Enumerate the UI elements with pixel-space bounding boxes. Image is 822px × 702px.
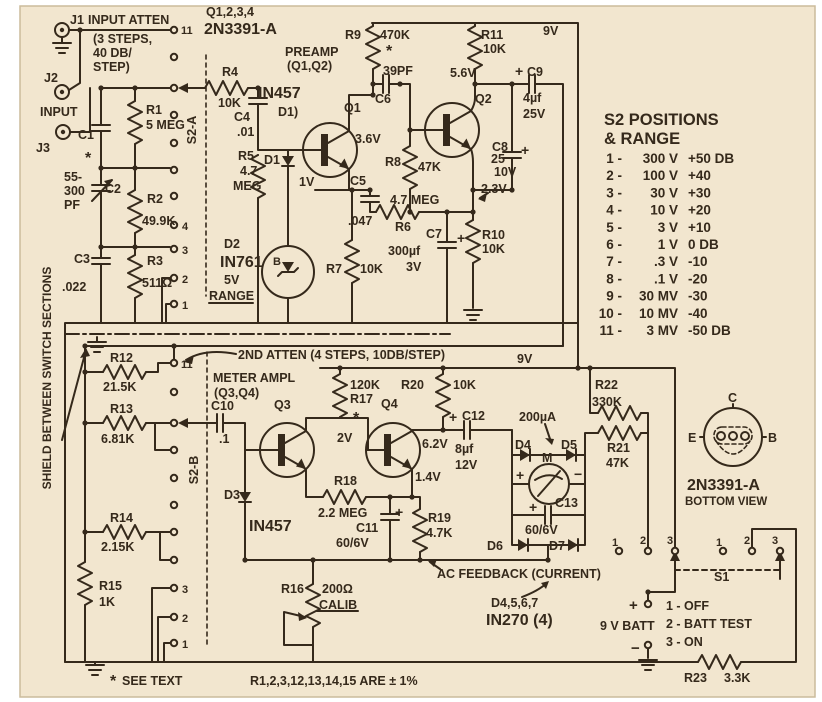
r22-label: R22 [595,378,618,392]
s2-row-11-pos: 11 - [599,323,622,338]
batt-minus: − [631,640,640,657]
s1a-pos-3: 3 [667,535,673,547]
r2-label: R2 [147,192,163,206]
r14-value: 2.15K [101,540,134,554]
r9-value: 470K [380,28,410,42]
r5-value-1: 4.7 [240,164,257,178]
q-note-1: Q1,2,3,4 [206,5,254,19]
c2-value-2: 300 [64,184,85,198]
c9-value-2: 25V [523,107,546,121]
c13-value: 60/6V [525,523,558,537]
s1-position-3: 3 - ON [666,635,703,649]
c1-star: * [85,150,92,167]
c9-value-1: 4µf [523,91,542,105]
c11-label: C11 [356,521,378,535]
s2-row-2-db: +40 [688,168,711,183]
q1-label: Q1 [344,101,361,115]
s2-row-6-db: 0 DB [688,237,719,252]
r3-label: R3 [147,254,163,268]
r15-value: 1K [99,595,115,609]
atten-note-3: STEP) [93,60,130,74]
s2-row-10-db: -40 [688,306,708,321]
r16-calib: CALIB [319,598,357,612]
s2-row-5-pos: 5 - [606,220,622,235]
r4-value: 10K [218,96,241,110]
see-text-star: * [110,673,117,690]
r13-value: 6.81K [101,432,134,446]
schematic-canvas: S2 POSITIONS & RANGE J1INPUT ATTEN(3 STE… [0,0,822,702]
r18-label: R18 [334,474,357,488]
q3-collector-v: 2V [337,431,353,445]
s2-row-2-pos: 2 - [606,168,622,183]
s2-row-3-range: 30 V [650,185,678,200]
c12-value-2: 12V [455,458,478,472]
q4-collector-v: 6.2V [422,437,448,451]
s2-row-2-range: 100 V [643,168,678,183]
bv-e: E [688,431,696,445]
bv-b: B [768,431,777,445]
r15-label: R15 [99,579,122,593]
batt-plus: + [629,597,638,614]
s2a-pos-3: 3 [182,245,188,257]
d7-label: D7 [549,539,565,553]
r7-value: 10K [360,262,383,276]
preamp-1: PREAMP [285,45,338,59]
d1-part: IN457 [258,85,301,102]
preamp-2: (Q1,Q2) [287,59,332,73]
j3-label: J3 [36,141,50,155]
schematic-scan: S2 POSITIONS & RANGE J1INPUT ATTEN(3 STE… [0,0,822,702]
c3-label: C3 [74,252,90,266]
second-atten-note: 2ND ATTEN (4 STEPS, 10DB/STEP) [238,348,445,362]
tolerance-note: R1,2,3,12,13,14,15 ARE ± 1% [250,674,418,688]
s2b-pos-11: 11 [181,359,193,371]
r22-value: 330K [592,395,622,409]
s1-position-1: 1 - OFF [666,599,709,613]
r5-value-2: MEG [233,179,261,193]
c7-plus: + [457,230,465,246]
s2b-pos-3: 3 [182,584,188,596]
r10-label: R10 [482,228,505,242]
c10-label: C10 [211,399,234,413]
r3-value: 511Ω [142,276,172,290]
s1b-pos-3: 3 [772,535,778,547]
d4-label: D4 [515,438,531,452]
r11-value: 10K [483,42,506,56]
s2-row-11-db: -50 DB [688,323,731,338]
d4567-label: D4,5,6,7 [491,596,538,610]
s2-row-3-db: +30 [688,185,711,200]
s2-row-1-pos: 1 - [606,151,622,166]
c2-label: C2 [105,182,121,196]
d4567-part: IN270 (4) [486,612,553,629]
supply-9v-top: 9V [543,24,559,38]
c12-plus: + [449,409,457,425]
d6-label: D6 [487,539,503,553]
supply-9v-low: 9V [517,352,533,366]
q2-base-v: 5.6V [450,66,476,80]
s2-row-8-db: -20 [688,271,708,286]
range-label: RANGE [209,289,254,303]
d2-part: IN761 [220,254,263,271]
c8-plus: + [521,142,529,158]
c3-value: .022 [62,280,86,294]
r23-label: R23 [684,671,707,685]
s1a-pos-2: 2 [640,535,646,547]
d1-pointer: D1) [278,105,298,119]
d2-value: 5V [224,273,240,287]
shield-note: SHIELD BETWEEN SWITCH SECTIONS [40,267,54,490]
q1-collector-v: 3.6V [355,132,381,146]
input-label: INPUT [40,105,78,119]
d2-b: B [273,256,281,268]
meter-value: 200µA [519,410,556,424]
q3-label: Q3 [274,398,291,412]
r17-label: R17 [350,392,373,406]
r6-value: 4.7 MEG [390,193,439,207]
s2-row-1-range: 300 V [643,151,678,166]
r12-label: R12 [110,351,133,365]
r20-value: 10K [453,378,476,392]
s1b-pos-1: 1 [716,537,722,549]
s1-position-2: 2 - BATT TEST [666,617,752,631]
c4-value: .01 [237,125,254,139]
s2-row-9-pos: 9 - [606,289,622,304]
s2-row-5-range: 3 V [658,220,678,235]
atten-note-2: 40 DB/ [93,46,132,60]
s1b-pos-2: 2 [744,535,750,547]
r13-label: R13 [110,402,133,416]
r1-label: R1 [146,103,162,117]
s2-row-9-db: -30 [688,289,708,304]
s2-row-6-range: 1 V [658,237,678,252]
s2a-pos-1: 1 [182,300,188,312]
r19-label: R19 [428,511,451,525]
s2-row-8-range: .1 V [654,271,678,286]
s2-row-8-pos: 8 - [606,271,622,286]
r2-value: 49.9K [142,214,175,228]
batt-label: 9 V BATT [600,619,655,633]
c1-label: C1 [78,128,94,142]
r11-label: R11 [481,28,503,42]
c6-label: C6 [375,92,391,106]
d3-part: IN457 [249,518,292,535]
q1-emitter-v: 1V [299,175,315,189]
c2-value-3: PF [64,198,80,212]
c10-value: .1 [219,432,229,446]
d2-label: D2 [224,237,240,251]
s2-row-4-db: +20 [688,203,711,218]
c5-value: .047 [348,214,372,228]
s2-panel-title-2: & RANGE [604,130,680,148]
r17-value: 120K [350,378,380,392]
s2a-pos-4: 4 [182,221,189,233]
s2-row-7-range: .3 V [654,254,678,269]
see-text-note: SEE TEXT [122,674,183,688]
q2-label: Q2 [475,92,492,106]
s2-row-10-range: 10 MV [639,306,678,321]
r12-value: 21.5K [103,380,136,394]
c7-value-2: 3V [406,260,422,274]
r9-star: * [386,43,393,60]
c2-value-1: 55- [64,170,82,184]
r23-value: 3.3K [724,671,750,685]
s2-row-4-range: 10 V [650,203,678,218]
c7-label: C7 [426,227,442,241]
r8-label: R8 [385,155,401,169]
s2-row-4-pos: 4 - [606,203,622,218]
d5-label: D5 [561,438,577,452]
s1-label: S1 [714,570,729,584]
s2-panel-title-1: S2 POSITIONS [604,111,719,129]
bv-part: 2N3391-A [687,477,760,494]
j2-label: J2 [44,71,58,85]
s2-row-6-pos: 6 - [606,237,622,252]
s2b-pos-2: 2 [182,613,188,625]
r17-star: * [353,410,360,427]
s2-row-7-pos: 7 - [606,254,622,269]
meter-ampl-2: (Q3,Q4) [214,386,259,400]
s1a-pos-1: 1 [612,537,618,549]
q-note-2: 2N3391-A [204,21,277,38]
c6-value: 39PF [383,64,413,78]
meter-ampl-1: METER AMPL [213,371,296,385]
s2b-pos-1: 1 [182,639,188,651]
r14-label: R14 [110,511,133,525]
meter-label: M [542,451,552,465]
r5-label: R5 [238,149,254,163]
input-atten-label: INPUT ATTEN [88,13,169,27]
s2-row-3-pos: 3 - [606,185,622,200]
s2-row-1-db: +50 DB [688,151,734,166]
d3-label: D3 [224,488,240,502]
s2-row-7-db: -10 [688,254,708,269]
c9-label: C9 [527,65,543,79]
s2-row-9-range: 30 MV [639,289,678,304]
r8-value: 47K [418,160,441,174]
c4-label: C4 [234,110,250,124]
r7-label: R7 [326,262,342,276]
q4-label: Q4 [381,397,398,411]
s2-row-11-range: 3 MV [646,323,678,338]
r21-label: R21 [607,441,630,455]
c8-value-1: 25 [491,152,505,166]
r20-label: R20 [401,378,424,392]
r21-value: 47K [606,456,629,470]
s2-row-10-pos: 10 - [599,306,622,321]
s2a-label: S2-A [185,116,199,144]
c8-value-2: 10V [494,165,517,179]
meter-minus: − [574,466,582,482]
s2a-pos-11: 11 [181,25,193,37]
r1-value: 5 MEG [146,118,185,132]
r10-value: 10K [482,242,505,256]
r4-label: R4 [222,65,238,79]
c13-label: C13 [555,496,578,510]
c13-plus: + [529,499,537,515]
r16-value: 200Ω [322,582,353,596]
s2b-label: S2-B [187,456,201,484]
q2-emitter-v: 2.3V [481,182,507,196]
c11-value: 60/6V [336,536,369,550]
c11-plus: + [395,504,403,520]
q4-emitter-v: 1.4V [415,470,441,484]
meter-plus: + [516,467,524,483]
r6-label: R6 [395,220,411,234]
r19-value: 4.7K [426,526,452,540]
atten-note-1: (3 STEPS, [93,32,152,46]
c5-label: C5 [350,174,366,188]
s2a-pos-2: 2 [182,274,188,286]
ac-feedback-note: AC FEEDBACK (CURRENT) [437,567,601,581]
j1-label: J1 [70,13,84,27]
c9-plus: + [515,63,523,79]
c12-label: C12 [462,409,485,423]
s2-row-5-db: +10 [688,220,711,235]
bv-c: C [728,391,737,405]
c12-value-1: 8µf [455,442,474,456]
d1-label: D1 [264,153,280,167]
bv-note: BOTTOM VIEW [685,496,767,508]
r9-label: R9 [345,28,361,42]
r18-value: 2.2 MEG [318,506,367,520]
c7-value-1: 300µf [388,244,421,258]
r16-label: R16 [281,582,304,596]
